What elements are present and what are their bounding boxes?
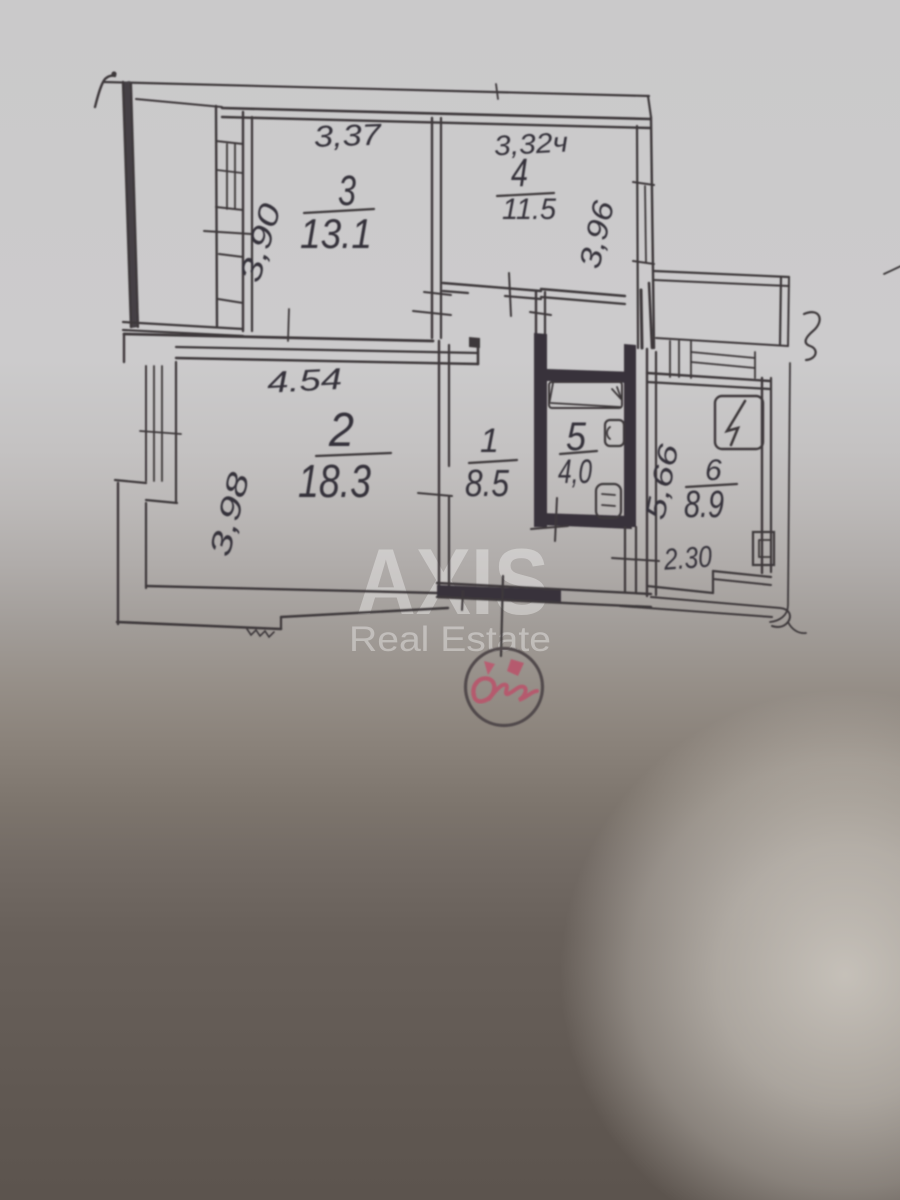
svg-text:18.3: 18.3 bbox=[298, 455, 371, 507]
svg-text:2.30: 2.30 bbox=[662, 540, 713, 576]
svg-text:3,32ч: 3,32ч bbox=[493, 127, 569, 162]
svg-text:6: 6 bbox=[705, 454, 722, 487]
svg-text:4.54: 4.54 bbox=[266, 363, 343, 400]
svg-text:AXIS: AXIS bbox=[356, 529, 549, 634]
svg-text:4: 4 bbox=[511, 151, 528, 195]
svg-text:3: 3 bbox=[338, 167, 356, 215]
svg-text:2: 2 bbox=[328, 404, 354, 457]
svg-text:8.5: 8.5 bbox=[465, 463, 510, 505]
svg-text:8.9: 8.9 bbox=[684, 484, 724, 526]
svg-text:4,0: 4,0 bbox=[558, 453, 592, 491]
svg-text:11.5: 11.5 bbox=[502, 193, 556, 226]
svg-text:13.1: 13.1 bbox=[300, 210, 372, 257]
svg-text:3,37: 3,37 bbox=[313, 119, 383, 154]
svg-text:1: 1 bbox=[480, 422, 499, 460]
